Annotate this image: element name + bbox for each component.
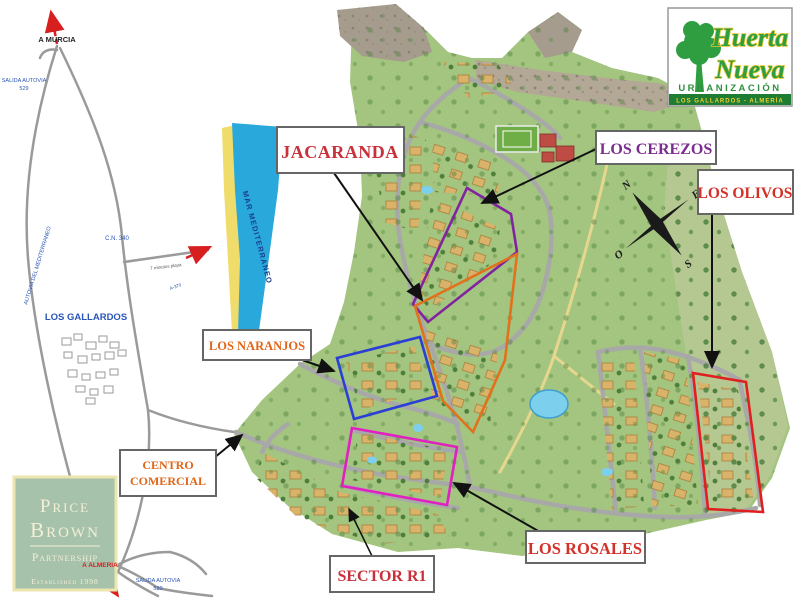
agency-name-2: Brown: [30, 518, 100, 542]
a-almeria-label: A ALMERIA: [82, 562, 118, 569]
beach-road-number: A-370: [169, 282, 182, 291]
label-sector-r1: SECTOR R1: [330, 556, 434, 592]
naranjos-text: LOS NARANJOS: [209, 339, 305, 353]
jacaranda-text: JACARANDA: [281, 142, 399, 162]
brand-subtitle: URBANIZACIÓN: [678, 82, 781, 94]
label-cerezos: LOS CEREZOS: [596, 131, 716, 164]
arrow-centro: [214, 435, 242, 458]
huerta-nueva-logo: Huerta Nueva URBANIZACIÓN LOS GALLARDOS …: [668, 8, 792, 106]
brand-name-1: Huerta: [711, 23, 789, 52]
salida-529-label: SALIDA AUTOVIA: [2, 78, 47, 84]
town-label: LOS GALLARDOS: [45, 312, 127, 323]
cerezos-text: LOS CEREZOS: [600, 141, 713, 158]
site-plan: A MURCIA SALIDA AUTOVIA 529 AUTOVIA DEL …: [0, 0, 800, 600]
centro-text-2: COMERCIAL: [130, 474, 206, 488]
label-centro-comercial: CENTRO COMERCIAL: [120, 450, 216, 496]
road-to-development: [148, 410, 234, 432]
brand-name-2: Nueva: [714, 55, 784, 84]
beach-road: [124, 250, 208, 262]
label-jacaranda: JACARANDA: [277, 127, 404, 173]
label-naranjos: LOS NARANJOS: [203, 330, 311, 360]
site-plan-canvas: A MURCIA SALIDA AUTOVIA 529 AUTOVIA DEL …: [0, 0, 800, 600]
price-brown-logo: Price Brown Partnership Established 1998: [14, 477, 116, 590]
rosales-text: LOS ROSALES: [528, 539, 642, 558]
olivos-text: LOS OLIVOS: [698, 185, 793, 202]
label-olivos: LOS OLIVOS: [698, 170, 793, 214]
brand-location: LOS GALLARDOS - ALMERÍA: [676, 97, 783, 105]
salida-520-label: SALIDA AUTOVIA: [136, 578, 181, 584]
sector-r1-text: SECTOR R1: [337, 568, 426, 585]
agency-name-1: Price: [40, 496, 90, 517]
beach-road-label: 7 minutos playa: [150, 262, 182, 271]
cn340-label: C.N. 340: [105, 236, 129, 242]
south-roads: [158, 588, 212, 596]
salida-520-number: 520: [153, 586, 162, 592]
label-rosales: LOS ROSALES: [526, 531, 645, 563]
los-gallardos-town-grid: [62, 334, 126, 404]
centro-text-1: CENTRO: [142, 458, 193, 472]
sports-pitch: [496, 126, 538, 152]
agency-established: Established 1998: [31, 577, 99, 586]
a-murcia-label: A MURCIA: [38, 35, 76, 44]
salida-529-number: 529: [19, 86, 28, 92]
